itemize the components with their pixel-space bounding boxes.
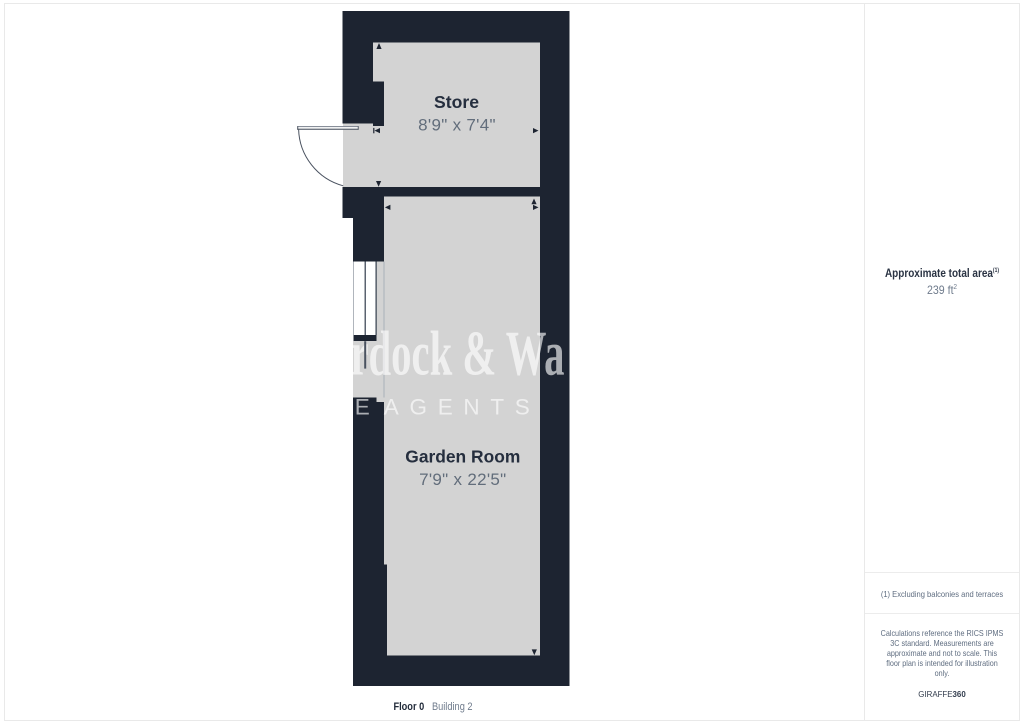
svg-text:Garden Room: Garden Room	[405, 446, 520, 466]
svg-text:AGENTS: AGENTS	[384, 394, 541, 419]
svg-text:Store: Store	[434, 92, 479, 112]
svg-text:7'9" x 22'5": 7'9" x 22'5"	[419, 470, 506, 489]
svg-text:rdock & Wa: rdock & Wa	[351, 318, 565, 389]
svg-text:E: E	[355, 394, 370, 419]
svg-text:8'9" x 7'4": 8'9" x 7'4"	[418, 115, 496, 134]
